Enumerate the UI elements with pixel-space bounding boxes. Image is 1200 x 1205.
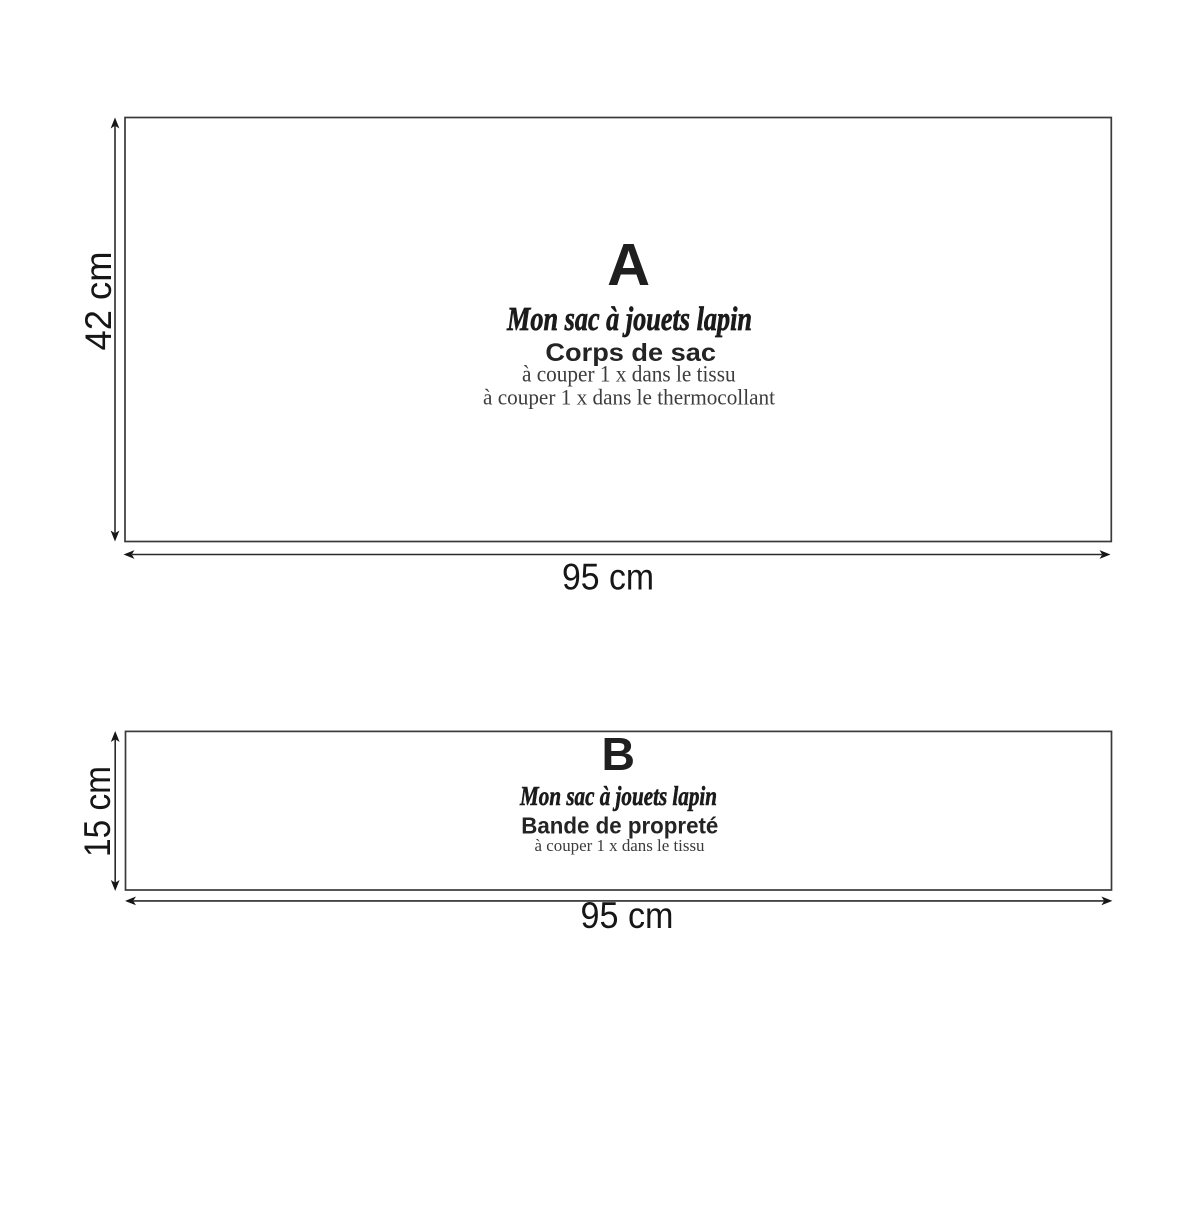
svg-text:à couper 1 x dans le tissu: à couper 1 x dans le tissu <box>522 361 736 386</box>
svg-text:15 cm: 15 cm <box>77 766 118 857</box>
svg-text:Mon sac à jouets lapin: Mon sac à jouets lapin <box>519 780 717 811</box>
svg-text:à couper 1 x dans le thermocol: à couper 1 x dans le thermocollant <box>483 385 775 410</box>
svg-text:Mon sac à jouets lapin: Mon sac à jouets lapin <box>506 301 752 338</box>
svg-text:à couper 1 x dans le tissu: à couper 1 x dans le tissu <box>535 836 706 855</box>
svg-text:95 cm: 95 cm <box>562 557 654 598</box>
svg-text:42 cm: 42 cm <box>78 252 119 351</box>
svg-text:Bande de propreté: Bande de propreté <box>521 812 718 838</box>
svg-text:B: B <box>602 728 636 780</box>
svg-text:A: A <box>607 231 650 298</box>
svg-text:95 cm: 95 cm <box>581 895 674 936</box>
